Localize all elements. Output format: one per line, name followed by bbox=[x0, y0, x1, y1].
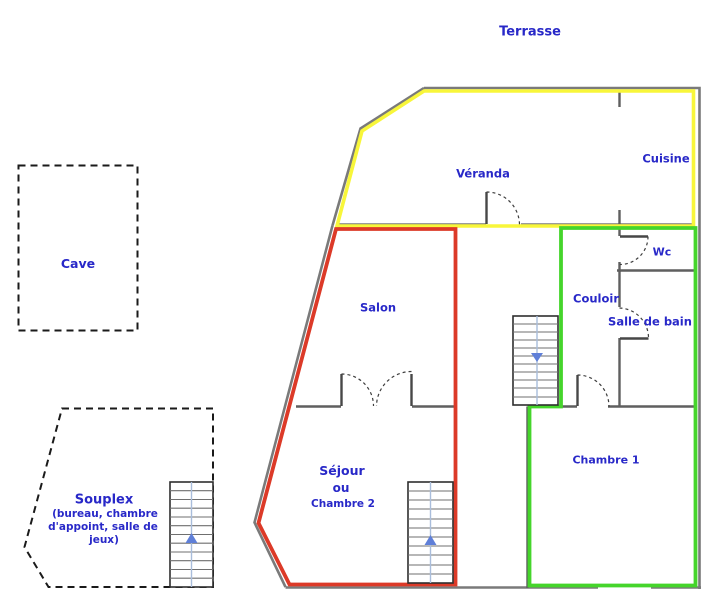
sejour-staircase bbox=[408, 482, 453, 583]
label-chambre-2: Chambre 2 bbox=[311, 499, 375, 510]
label-souplex: Souplex bbox=[75, 494, 134, 507]
label-salon: Salon bbox=[360, 302, 396, 314]
wc-door-arc bbox=[620, 237, 648, 265]
chambre1-door-arc bbox=[578, 375, 610, 407]
label-cuisine: Cuisine bbox=[642, 153, 689, 165]
label-terrasse: Terrasse bbox=[499, 26, 561, 39]
label-sejour-ou: ou bbox=[333, 482, 350, 494]
label-souplex-line1: (bureau, chambre bbox=[52, 509, 158, 520]
zone-veranda-cuisine-outline bbox=[337, 91, 694, 226]
entry-staircase bbox=[513, 316, 558, 405]
veranda-door-arc bbox=[487, 192, 520, 225]
label-couloir: Couloir bbox=[573, 293, 619, 305]
double-door-arc-right bbox=[377, 372, 412, 407]
label-souplex-line2: d'appoint, salle de bbox=[48, 522, 158, 533]
label-souplex-line3: jeux) bbox=[89, 535, 119, 546]
label-salle-de-bain: Salle de bain bbox=[608, 316, 692, 328]
label-veranda: Véranda bbox=[456, 168, 510, 180]
double-door-arc-left bbox=[342, 374, 374, 406]
label-cave: Cave bbox=[61, 258, 95, 271]
label-sejour: Séjour bbox=[319, 465, 364, 478]
label-wc: Wc bbox=[653, 247, 672, 258]
wall-top-left-diagonal bbox=[333, 88, 425, 226]
label-chambre-1: Chambre 1 bbox=[572, 455, 639, 466]
cave-outline bbox=[19, 166, 138, 331]
souplex-staircase bbox=[170, 482, 213, 587]
floor-plan: Terrasse Cave Véranda Cuisine Wc Couloir… bbox=[0, 0, 709, 600]
